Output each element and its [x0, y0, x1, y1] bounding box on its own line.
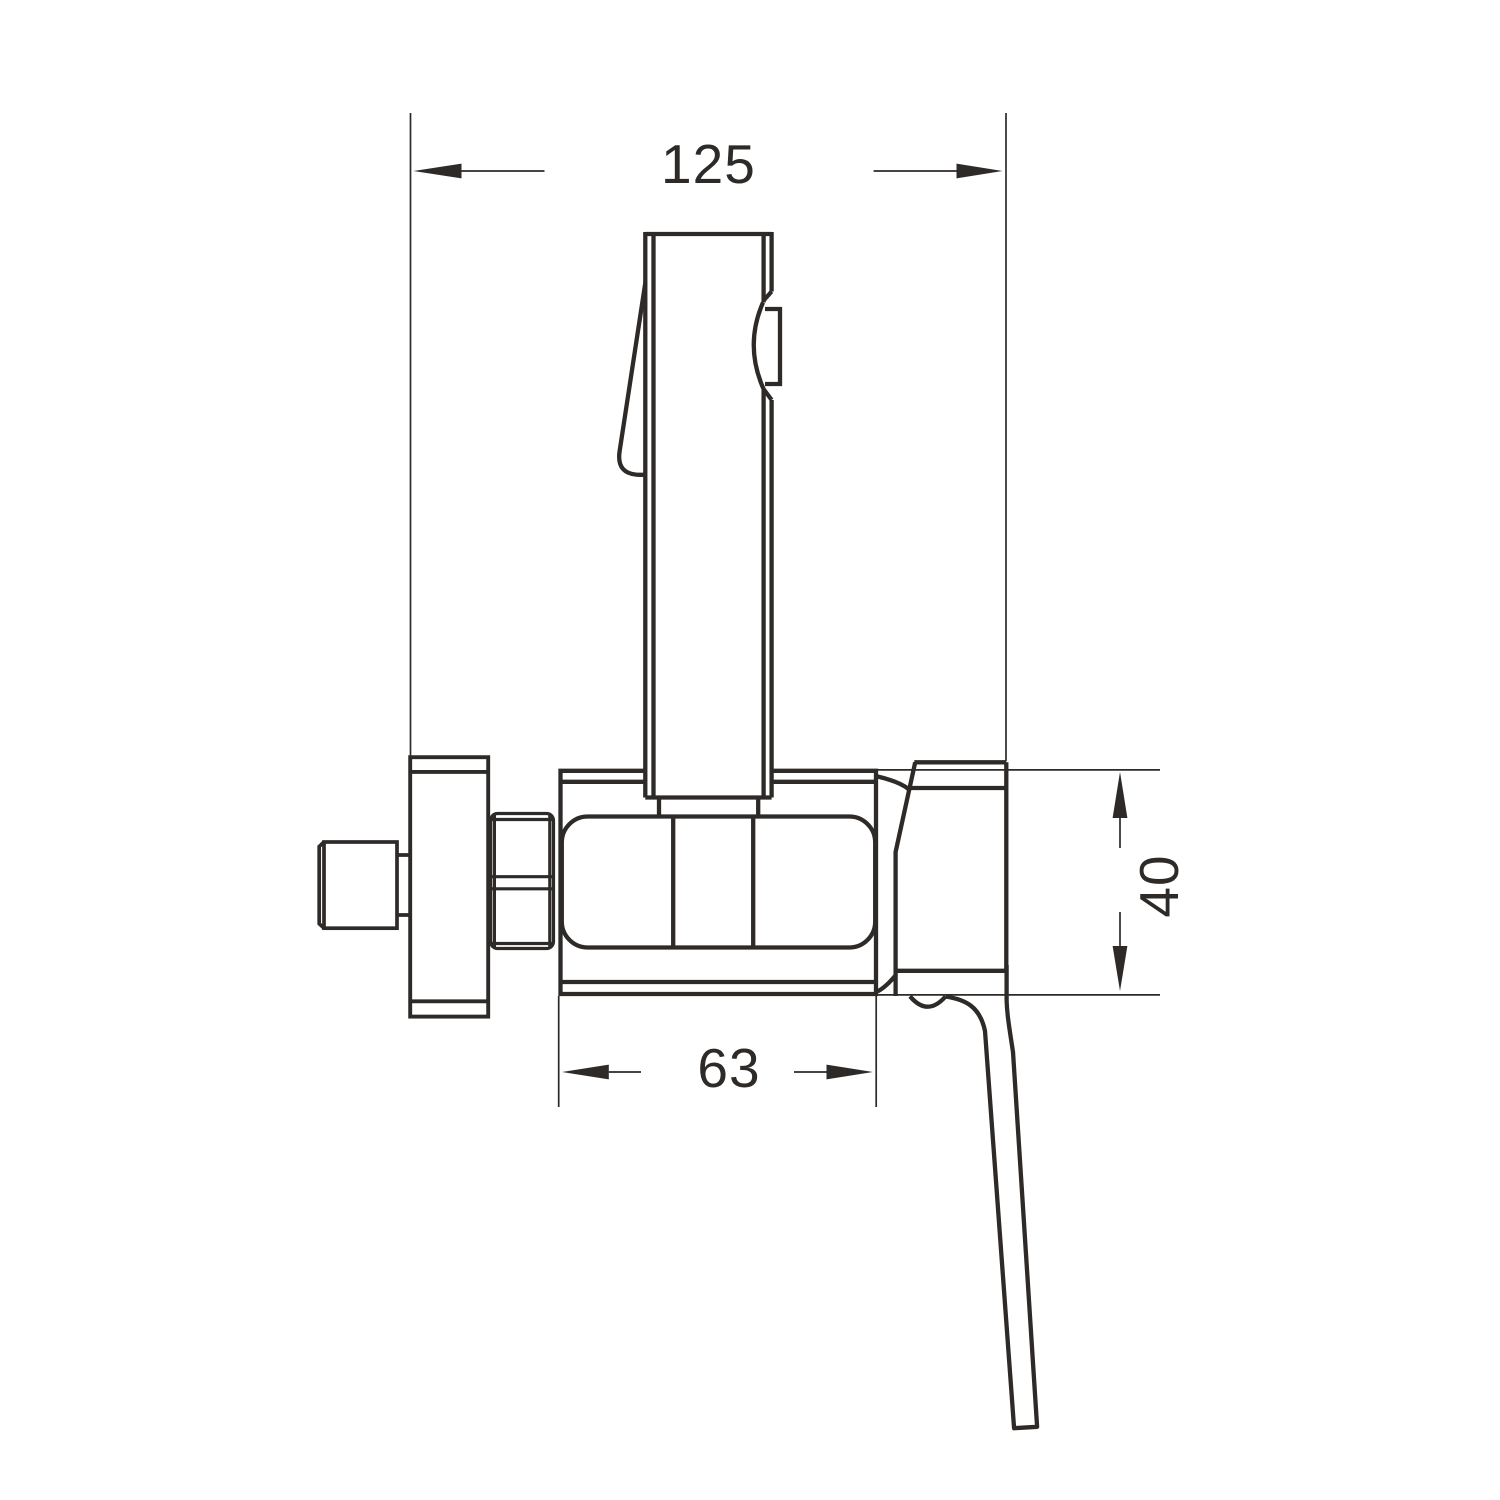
svg-text:63: 63	[697, 1037, 760, 1099]
svg-text:40: 40	[1128, 854, 1190, 917]
svg-text:125: 125	[661, 133, 756, 195]
